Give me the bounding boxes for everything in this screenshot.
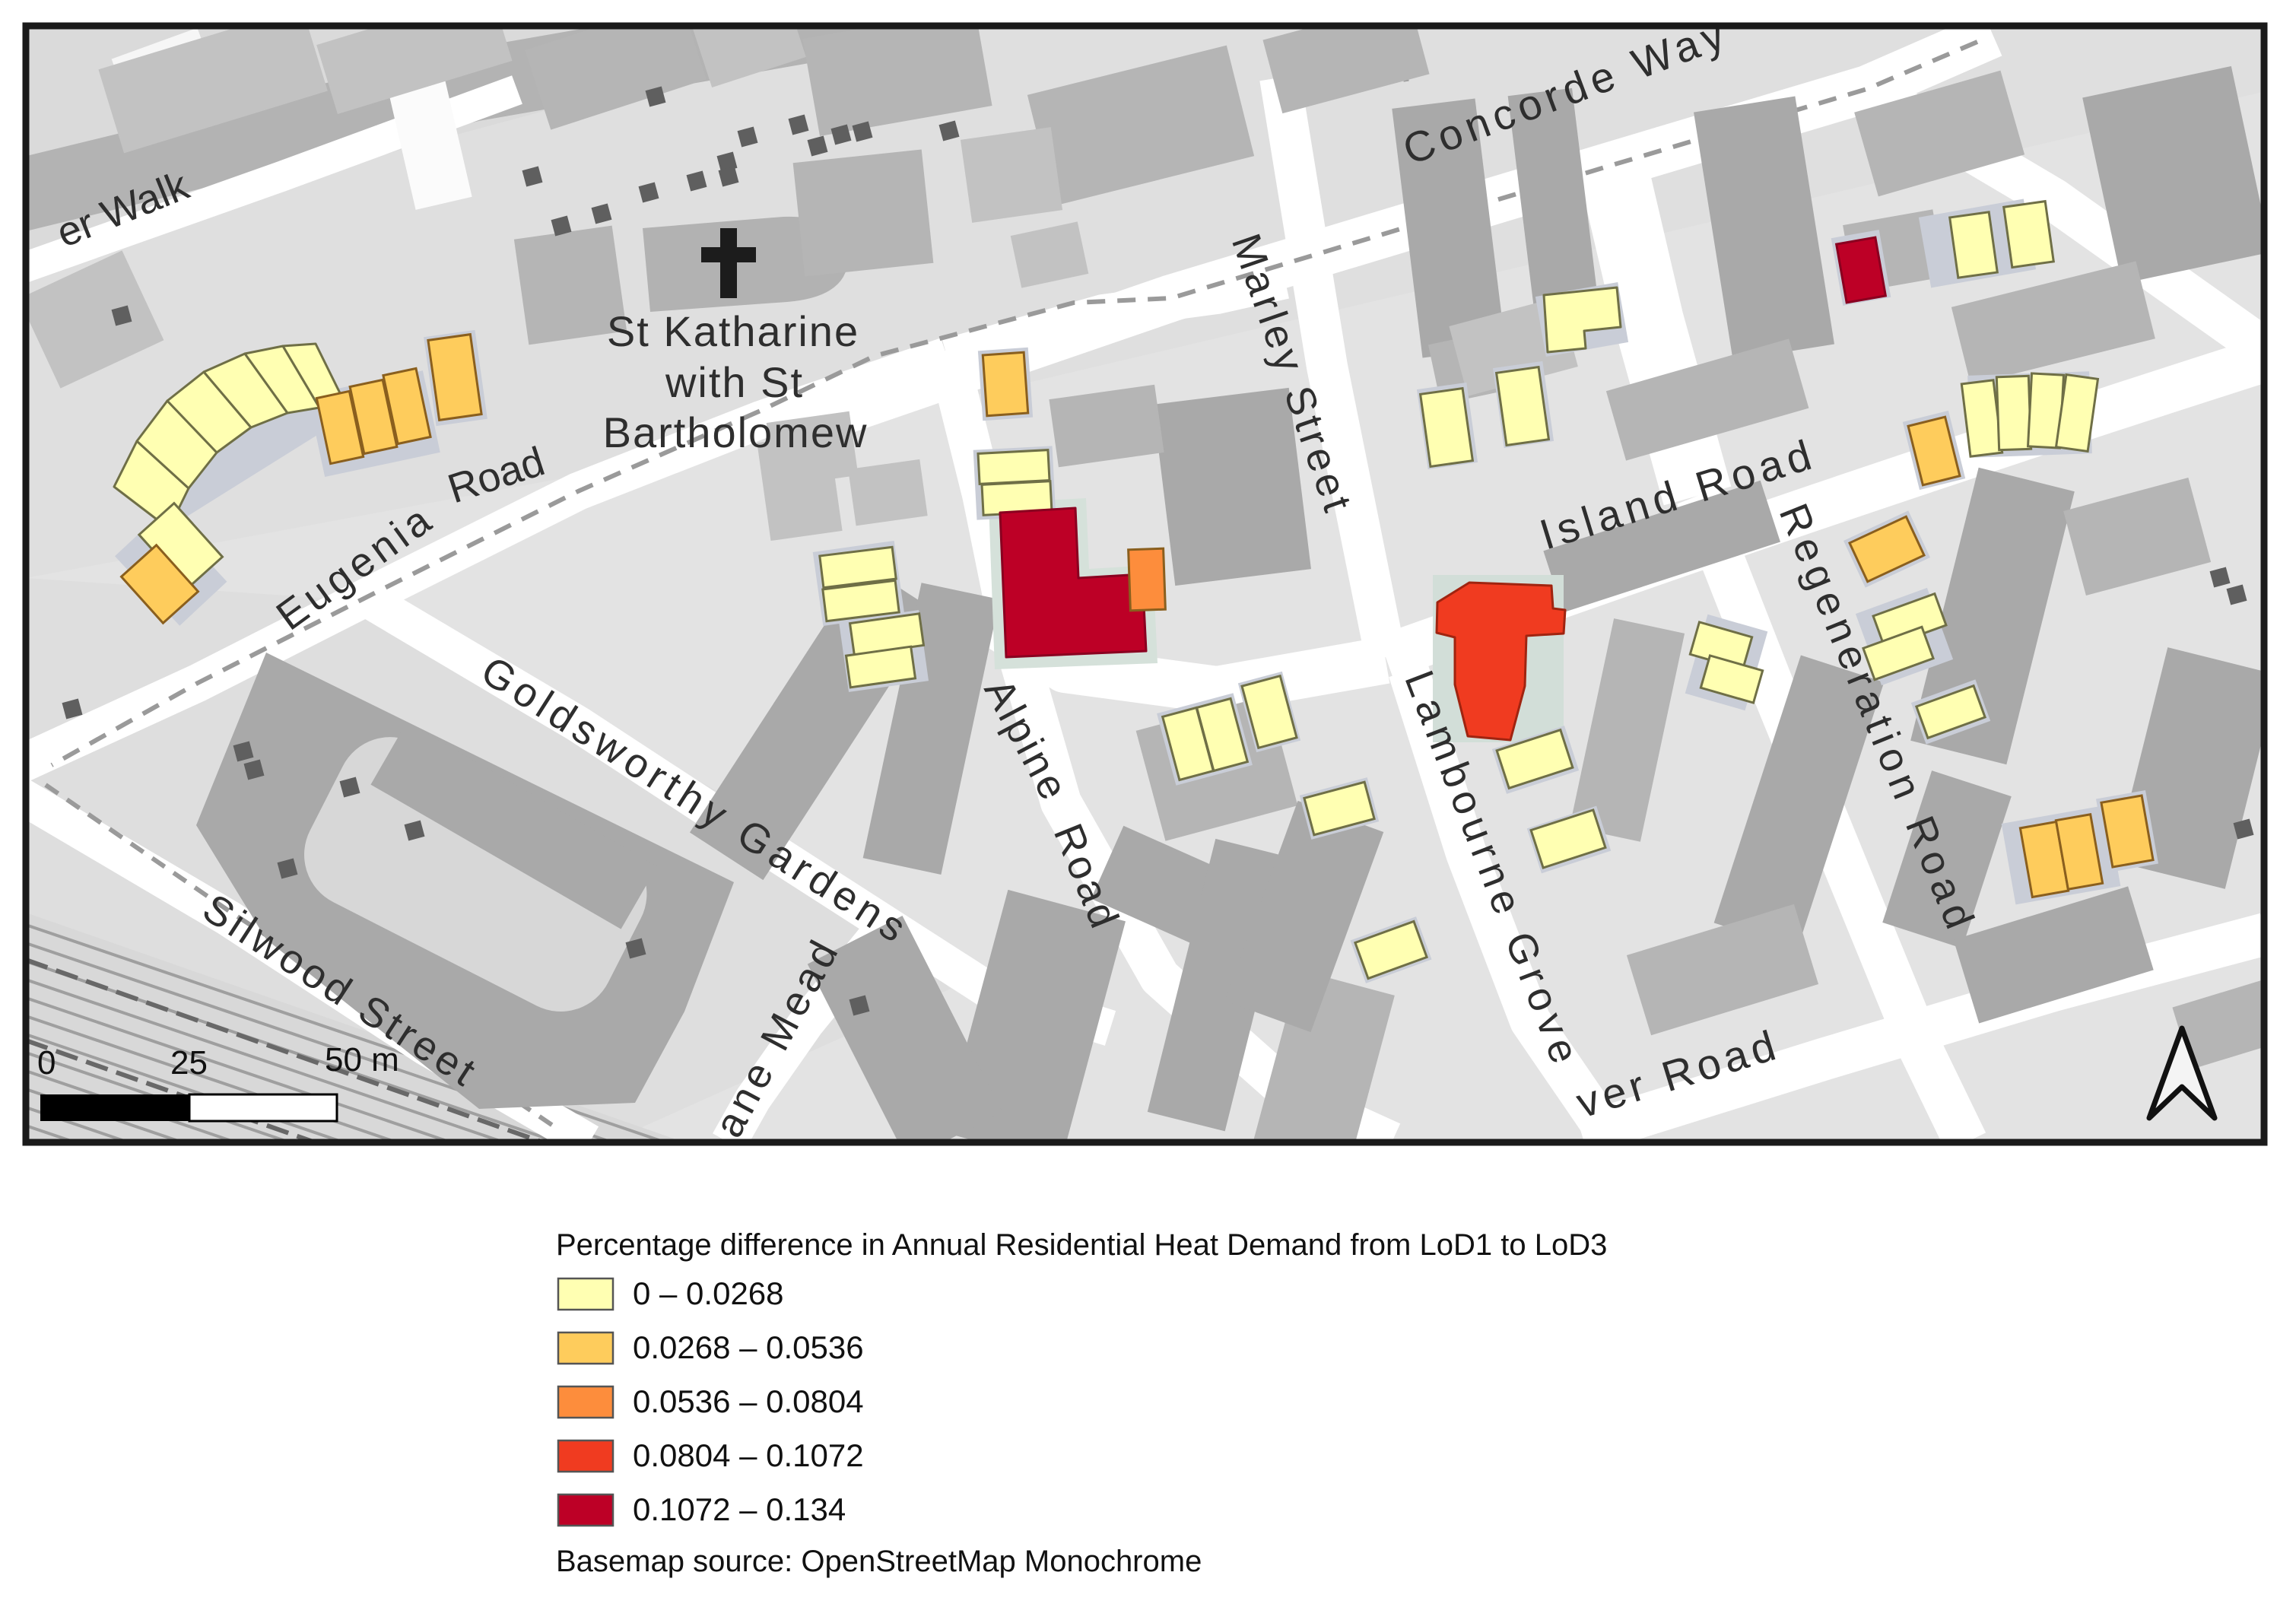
svg-text:0.1072 – 0.134: 0.1072 – 0.134 [633,1491,846,1527]
svg-text:St Katharine: St Katharine [607,307,859,355]
svg-text:0: 0 [37,1044,56,1082]
svg-text:25: 25 [170,1044,208,1082]
svg-text:0.0804 – 0.1072: 0.0804 – 0.1072 [633,1437,864,1473]
svg-text:with St: with St [665,358,804,406]
svg-text:50 m: 50 m [325,1041,399,1078]
svg-text:0 – 0.0268: 0 – 0.0268 [633,1275,784,1311]
svg-text:0.0268 – 0.0536: 0.0268 – 0.0536 [633,1329,864,1365]
svg-text:Percentage difference in Annua: Percentage difference in Annual Resident… [556,1228,1607,1262]
svg-text:Bartholomew: Bartholomew [603,408,869,456]
svg-text:0.0536 – 0.0804: 0.0536 – 0.0804 [633,1383,864,1419]
svg-text:Basemap source: OpenStreetMap: Basemap source: OpenStreetMap Monochrome [556,1545,1202,1578]
